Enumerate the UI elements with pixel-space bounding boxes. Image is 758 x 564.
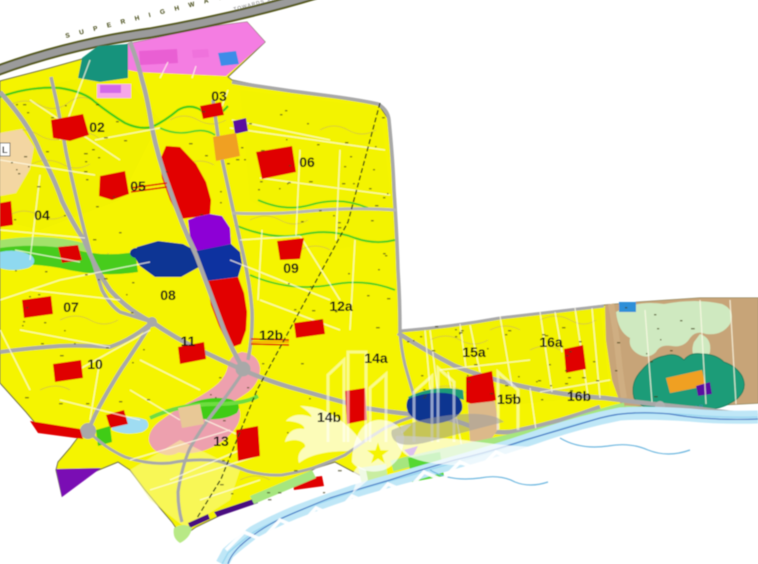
svg-text:08: 08 <box>160 287 176 303</box>
svg-text:09: 09 <box>283 260 299 276</box>
svg-text:05: 05 <box>130 178 146 194</box>
svg-text:14a: 14a <box>364 350 388 366</box>
svg-text:14b: 14b <box>317 409 341 425</box>
svg-text:12b: 12b <box>259 327 283 343</box>
svg-text:13: 13 <box>213 433 229 449</box>
svg-text:15a: 15a <box>462 344 486 360</box>
svg-text:16b: 16b <box>567 388 591 404</box>
svg-text:11: 11 <box>181 333 196 349</box>
svg-text:04: 04 <box>34 207 50 223</box>
svg-text:06: 06 <box>299 154 315 170</box>
svg-text:03: 03 <box>211 88 227 104</box>
svg-text:07: 07 <box>63 299 79 315</box>
svg-text:16a: 16a <box>539 334 563 350</box>
svg-text:12a: 12a <box>329 298 353 314</box>
svg-text:15b: 15b <box>497 391 521 407</box>
svg-text:10: 10 <box>87 356 103 372</box>
svg-text:L: L <box>2 145 8 155</box>
svg-text:02: 02 <box>89 119 105 135</box>
